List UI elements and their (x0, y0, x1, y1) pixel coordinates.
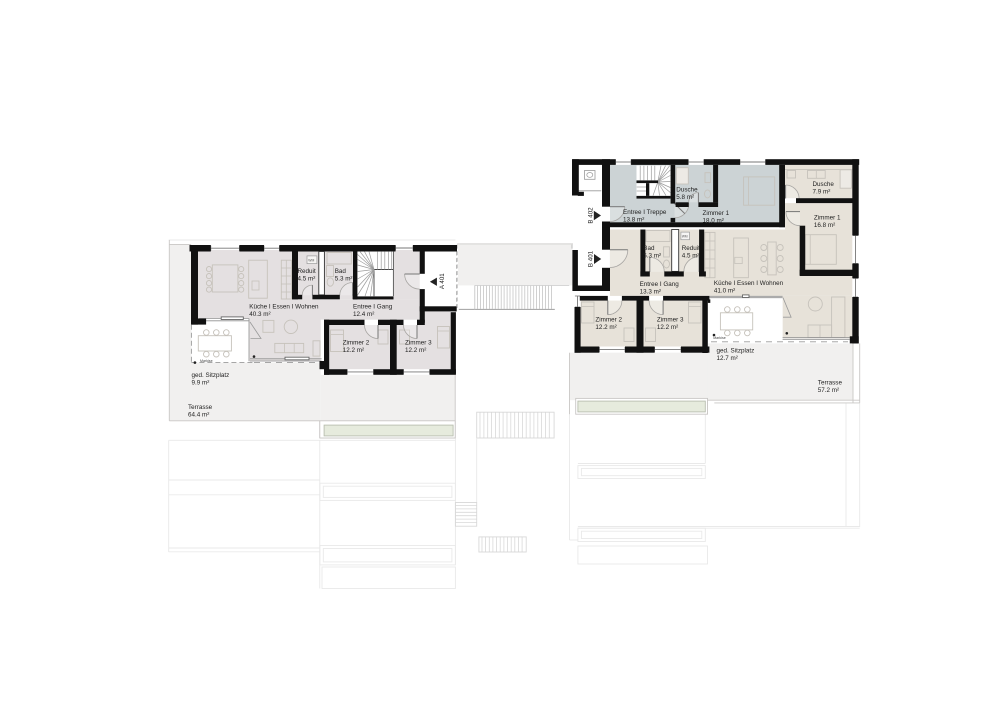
svg-text:7.9 m²: 7.9 m² (813, 188, 831, 195)
svg-text:ged. Sitzplatz: ged. Sitzplatz (192, 372, 230, 379)
svg-text:12.2 m²: 12.2 m² (343, 347, 364, 354)
svg-text:12.2 m²: 12.2 m² (405, 347, 426, 354)
svg-text:B 402: B 402 (587, 207, 594, 224)
svg-text:Zimmer 3: Zimmer 3 (657, 317, 684, 324)
svg-text:Dusche: Dusche (676, 187, 698, 194)
svg-text:41.0 m²: 41.0 m² (714, 288, 735, 295)
svg-text:40.3 m²: 40.3 m² (249, 311, 270, 318)
svg-text:5.3 m²: 5.3 m² (335, 276, 353, 283)
svg-text:WM: WM (308, 258, 314, 262)
svg-text:Markise: Markise (713, 336, 726, 340)
svg-text:Terrasse: Terrasse (188, 404, 213, 411)
svg-text:Entree I Gang: Entree I Gang (353, 303, 393, 310)
svg-text:57.2 m²: 57.2 m² (818, 387, 839, 394)
svg-text:B 401: B 401 (587, 250, 594, 267)
svg-text:Entree I Treppe: Entree I Treppe (623, 209, 667, 216)
svg-text:ged. Sitzplatz: ged. Sitzplatz (717, 348, 755, 355)
svg-text:12.7 m²: 12.7 m² (717, 355, 738, 362)
svg-text:A 401: A 401 (439, 273, 446, 289)
svg-text:Zimmer 2: Zimmer 2 (343, 340, 370, 347)
svg-text:Zimmer 3: Zimmer 3 (405, 340, 432, 347)
svg-text:13.3 m²: 13.3 m² (640, 288, 661, 295)
svg-text:18.0 m²: 18.0 m² (703, 218, 724, 225)
svg-text:Zimmer 1: Zimmer 1 (703, 210, 730, 217)
svg-text:Reduit: Reduit (682, 245, 700, 252)
svg-text:Dusche: Dusche (813, 181, 835, 188)
svg-text:12.4 m²: 12.4 m² (353, 311, 374, 318)
svg-text:Reduit: Reduit (298, 268, 316, 275)
svg-text:Küche I Essen I Wohnen: Küche I Essen I Wohnen (249, 303, 319, 310)
svg-text:5.8 m²: 5.8 m² (676, 194, 694, 201)
svg-text:9.9 m²: 9.9 m² (192, 380, 210, 387)
svg-text:Bad: Bad (643, 245, 655, 252)
svg-text:64.4 m²: 64.4 m² (188, 412, 209, 419)
svg-text:12.2 m²: 12.2 m² (595, 324, 616, 331)
svg-text:16.8 m²: 16.8 m² (814, 222, 835, 229)
svg-text:WM: WM (682, 234, 688, 238)
svg-text:Terrasse: Terrasse (818, 380, 843, 387)
svg-text:13.8 m²: 13.8 m² (623, 217, 644, 224)
svg-text:12.2 m²: 12.2 m² (657, 324, 678, 331)
svg-text:4.5 m²: 4.5 m² (682, 253, 700, 260)
svg-text:Entree I Gang: Entree I Gang (640, 281, 680, 288)
svg-text:Bad: Bad (335, 268, 347, 275)
svg-text:4.5 m²: 4.5 m² (298, 276, 316, 283)
svg-text:Markise: Markise (200, 359, 213, 363)
svg-text:Zimmer 2: Zimmer 2 (595, 317, 622, 324)
svg-text:5.3 m²: 5.3 m² (643, 253, 661, 260)
svg-text:Küche I Essen I Wohnen: Küche I Essen I Wohnen (714, 280, 784, 287)
svg-text:Zimmer 1: Zimmer 1 (814, 214, 841, 221)
